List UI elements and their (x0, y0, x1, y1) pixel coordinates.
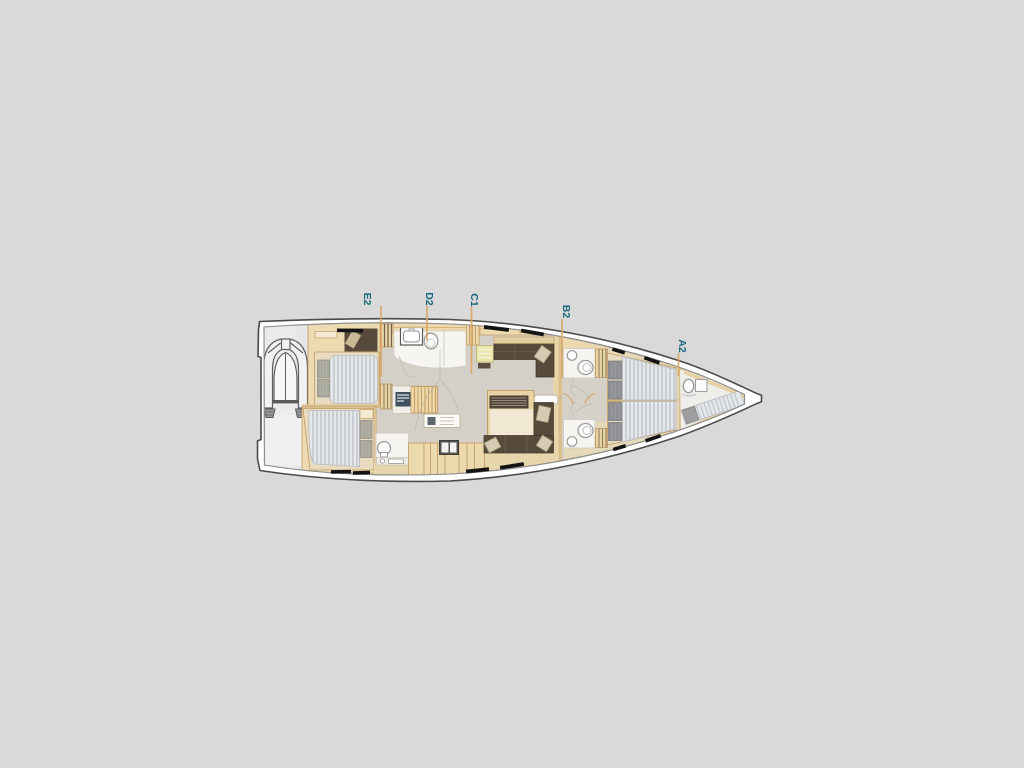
svg-text:D2: D2 (423, 292, 435, 306)
svg-text:C1: C1 (468, 293, 480, 307)
svg-text:A2: A2 (676, 339, 688, 353)
svg-text:B2: B2 (560, 305, 572, 319)
svg-text:E2: E2 (361, 293, 373, 306)
